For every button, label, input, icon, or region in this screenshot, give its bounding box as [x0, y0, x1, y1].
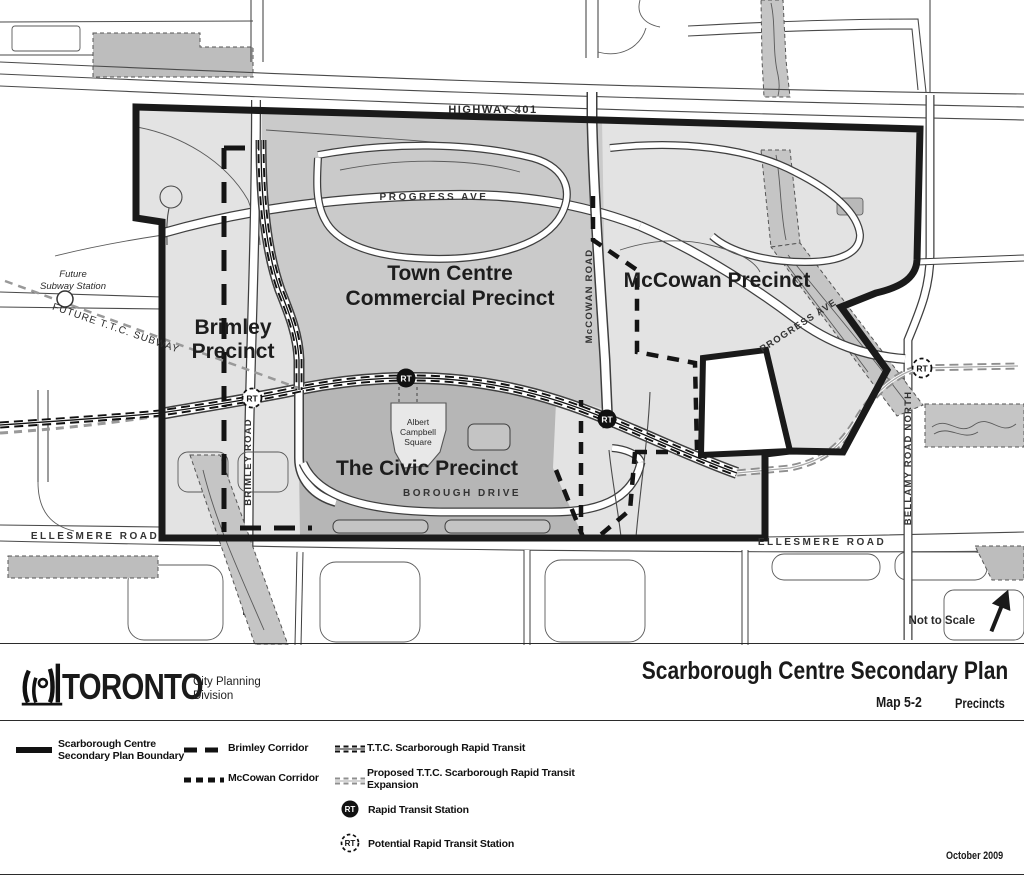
legend-text: Proposed T.T.C. Scarborough Rapid Transi… — [367, 767, 575, 779]
acs-label3: Square — [404, 437, 432, 447]
ellesmere-road-east-label: ELLESMERE ROAD — [758, 537, 886, 548]
rt-station-label: RT — [601, 415, 613, 425]
rt-station-label: RT — [400, 374, 412, 384]
legend-text: McCowan Corridor — [228, 772, 319, 784]
legend-text: Expansion — [367, 779, 575, 791]
town-centre-precinct-label2: Commercial Precinct — [346, 287, 555, 310]
department-line1: City Planning — [193, 676, 261, 690]
rt-station-swatch: RT — [340, 799, 360, 819]
rt-station-town-centre: RT — [397, 369, 416, 388]
divider-bottom — [0, 874, 1024, 875]
rt-station-mccowan: RT — [598, 410, 617, 429]
legend-text: Rapid Transit Station — [368, 804, 469, 816]
boundary-swatch — [14, 744, 54, 756]
future-subway-station-label2: Subway Station — [40, 281, 106, 292]
plan-map: RT RT RT RT HIGHWAY 401 PROGRESS AVE PRO… — [0, 0, 1024, 645]
brimley-precinct-label2: Precinct — [192, 340, 275, 363]
legend-text: Secondary Plan Boundary — [58, 750, 184, 762]
divider-legend — [0, 720, 1024, 721]
rt-station-brimley: RT — [243, 389, 262, 408]
town-centre-precinct-label: Town Centre — [387, 262, 513, 285]
mccowan-road-label: McCOWAN ROAD — [584, 249, 595, 344]
progress-ave-west-label: PROGRESS AVE — [380, 192, 489, 203]
sheet-subtitle: Precincts — [955, 696, 1016, 711]
mccowan-precinct-label: McCowan Precinct — [624, 269, 811, 292]
not-to-scale-label: Not to Scale — [909, 615, 975, 627]
bellamy-road-label: BELLAMY ROAD NORTH — [903, 391, 914, 525]
mccowan-corridor-swatch — [183, 774, 225, 786]
legend-item-boundary: Scarborough Centre Secondary Plan Bounda… — [58, 738, 184, 762]
brimley-precinct-label: Brimley — [194, 316, 271, 339]
borough-drive-label: BOROUGH DRIVE — [403, 488, 521, 499]
rt-station-label: RT — [916, 364, 928, 374]
rt-glyph: RT — [345, 805, 356, 814]
rt-station-label: RT — [246, 394, 258, 404]
acs-label1: Albert — [407, 417, 430, 427]
acs-label2: Campbell — [400, 427, 436, 437]
department-line2: Division — [193, 690, 261, 704]
brimley-corridor-swatch — [183, 744, 225, 756]
legend-text: Brimley Corridor — [228, 742, 308, 754]
rt-glyph: RT — [345, 839, 356, 848]
legend-item-ttc-rt: T.T.C. Scarborough Rapid Transit — [367, 742, 525, 754]
map-number: Map 5-2 — [876, 694, 932, 711]
legend-item-mccowan: McCowan Corridor — [228, 772, 319, 784]
north-arrow — [982, 586, 1017, 635]
brimley-road-label: BRIMLEY ROAD — [243, 418, 254, 506]
toronto-logo-icon — [20, 657, 64, 709]
legend-text: T.T.C. Scarborough Rapid Transit — [367, 742, 525, 754]
rt-station-bellamy: RT — [913, 359, 932, 378]
potential-rt-station-swatch: RT — [340, 833, 360, 853]
legend-item-rt-station: Rapid Transit Station — [368, 804, 469, 816]
department-label: City Planning Division — [193, 676, 261, 703]
sheet-title: Scarborough Centre Secondary Plan — [308, 657, 1008, 686]
civic-precinct-label: The Civic Precinct — [336, 457, 518, 480]
future-subway-station-label: Future — [59, 269, 86, 280]
proposed-rt-swatch — [334, 775, 366, 787]
ttc-rt-swatch — [334, 743, 366, 755]
legend-item-proposed-rt: Proposed T.T.C. Scarborough Rapid Transi… — [367, 767, 575, 791]
map-sheet: RT RT RT RT HIGHWAY 401 PROGRESS AVE PRO… — [0, 0, 1024, 878]
legend-item-potential-rt-station: Potential Rapid Transit Station — [368, 838, 514, 850]
divider-top — [0, 643, 1024, 644]
legend-text: Scarborough Centre — [58, 738, 184, 750]
legend-text: Potential Rapid Transit Station — [368, 838, 514, 850]
ellesmere-road-west-label: ELLESMERE ROAD — [31, 531, 159, 542]
publication-date: October 2009 — [946, 850, 1016, 862]
highway-401-label: HIGHWAY 401 — [448, 104, 537, 116]
legend-item-brimley: Brimley Corridor — [228, 742, 308, 754]
